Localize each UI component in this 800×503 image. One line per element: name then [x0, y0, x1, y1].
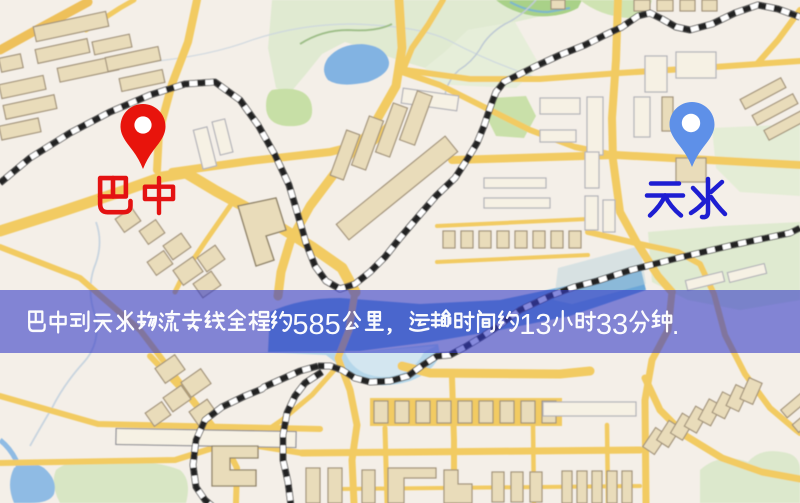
svg-text:585: 585 — [292, 309, 340, 341]
svg-text:.: . — [672, 310, 680, 340]
svg-text:13: 13 — [519, 309, 551, 341]
svg-text:33: 33 — [596, 309, 628, 341]
